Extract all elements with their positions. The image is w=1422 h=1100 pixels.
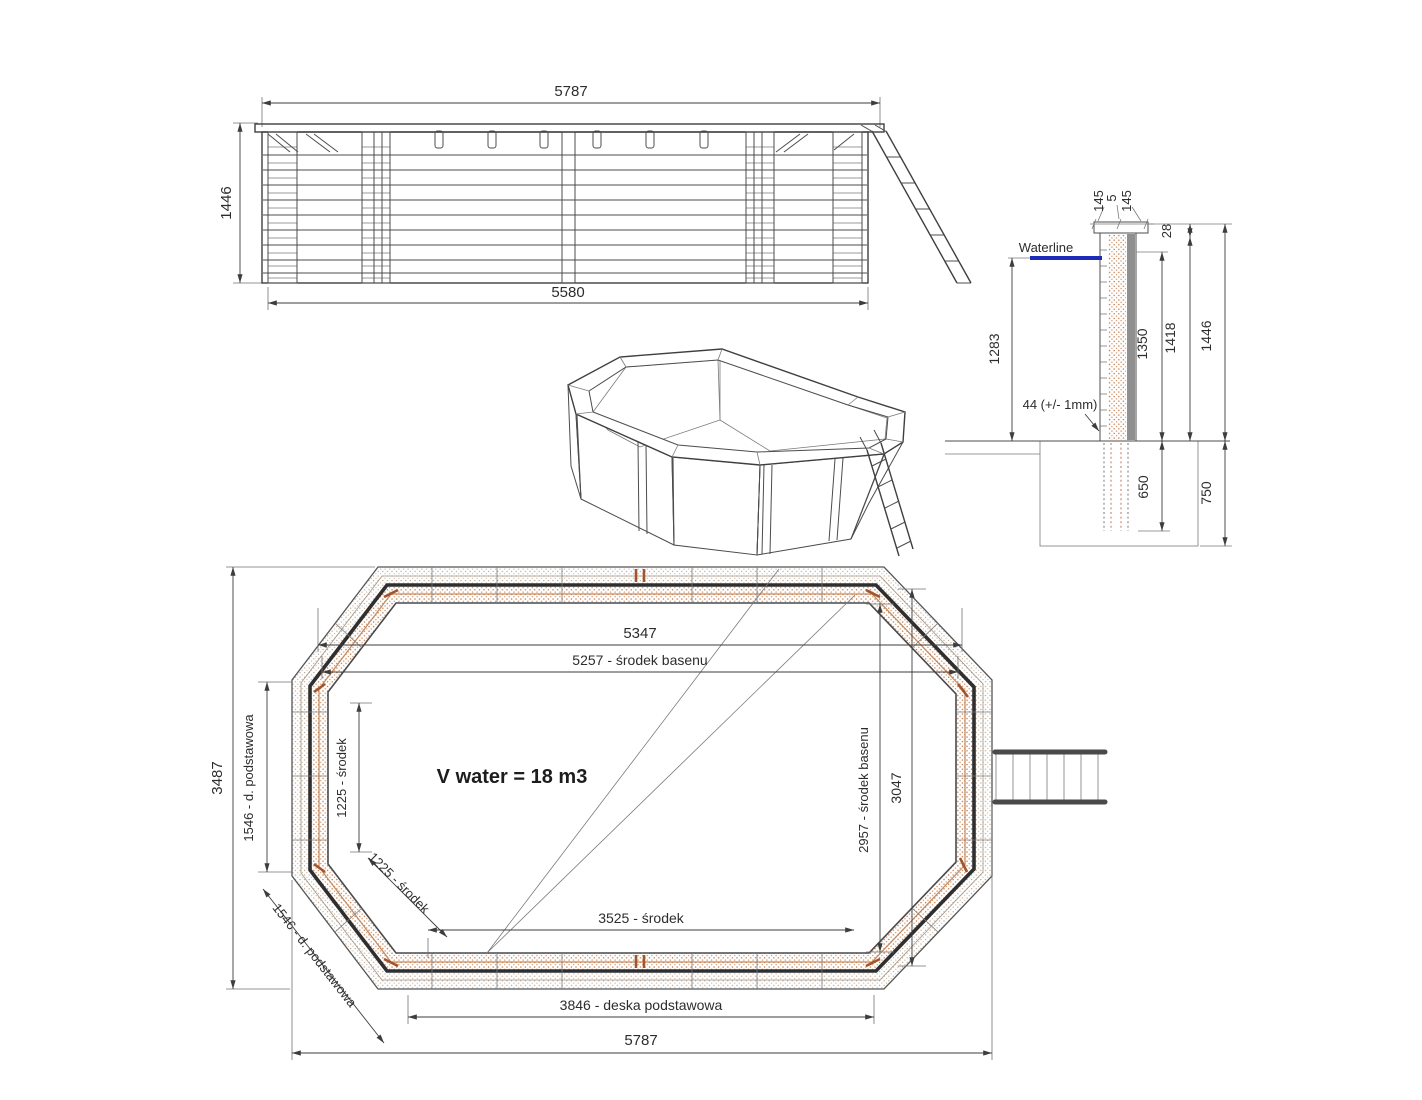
diagonal-brace-lines (487, 569, 855, 953)
dim-label-1350: 1350 (1134, 328, 1150, 359)
pool-technical-drawing: 5787 1446 5580 (0, 0, 1422, 1100)
volume-label: V water = 18 m3 (437, 766, 588, 788)
iso-corner-posts (577, 415, 884, 555)
dim-label-28: 28 (1159, 224, 1174, 238)
dim-label-650: 650 (1135, 475, 1151, 499)
dim-label-3525: 3525 - środek (598, 910, 685, 926)
iso-rim (568, 349, 905, 465)
dim-label-3846: 3846 - deska podstawowa (560, 997, 723, 1013)
log-course-ticks (1100, 250, 1107, 426)
dim-label-3047: 3047 (888, 772, 904, 803)
dim-label-1225-left: 1225 - środek (334, 738, 349, 818)
dim-label-5347: 5347 (623, 625, 656, 642)
elevation-ladder (861, 125, 971, 283)
cross-section-view: Waterline 145 5 145 28 1283 1350 1 (945, 190, 1232, 546)
plan-view: 5347 5257 - środek basenu 3487 1546 - d.… (209, 567, 1105, 1060)
waterline-label: Waterline (1019, 240, 1073, 255)
dim-label-750: 750 (1198, 481, 1214, 505)
plan-ladder (995, 752, 1105, 802)
technical-drawing-page: 5787 1446 5580 (0, 0, 1422, 1100)
foundation-block (1040, 441, 1198, 546)
dim-label-1446-section: 1446 (1198, 320, 1214, 351)
dim-label-1418: 1418 (1162, 322, 1178, 353)
dim-label-5-gap: 5 (1104, 194, 1119, 201)
buried-post-dashed (1104, 443, 1128, 531)
cap-dimensions: 145 5 145 (1090, 190, 1154, 229)
wall-planks (263, 155, 867, 273)
dim-label-1546-left: 1546 - d. podstawowa (241, 714, 256, 842)
dim-label-1446-left: 1446 (218, 186, 235, 219)
iso-wall-face (672, 457, 760, 555)
dim-label-5257: 5257 - środek basenu (572, 652, 707, 668)
note-44-label: 44 (+/- 1mm) (1023, 397, 1098, 412)
rim-support-tabs (435, 131, 708, 148)
isometric-view (568, 349, 913, 556)
dim-label-5787-top: 5787 (554, 83, 587, 100)
dim-label-5787-plan: 5787 (624, 1032, 657, 1049)
side-elevation-view: 5787 1446 5580 (218, 83, 971, 310)
dim-label-145-right: 145 (1119, 190, 1134, 212)
dim-28-group: 28 (1136, 224, 1232, 252)
dim-label-1283: 1283 (986, 333, 1002, 364)
pool-top-rim (255, 124, 884, 132)
dim-label-3487: 3487 (209, 761, 226, 794)
dim-label-1225-diag: 1225 - środek (366, 849, 433, 916)
dim-label-2957: 2957 - środek basenu (856, 727, 871, 853)
waterline-group: Waterline (1008, 240, 1102, 258)
rim-braces (268, 134, 854, 152)
dim-label-5580-bottom: 5580 (551, 284, 584, 301)
note-44-group: 44 (+/- 1mm) (1023, 397, 1099, 431)
iso-outer-walls (568, 385, 903, 555)
